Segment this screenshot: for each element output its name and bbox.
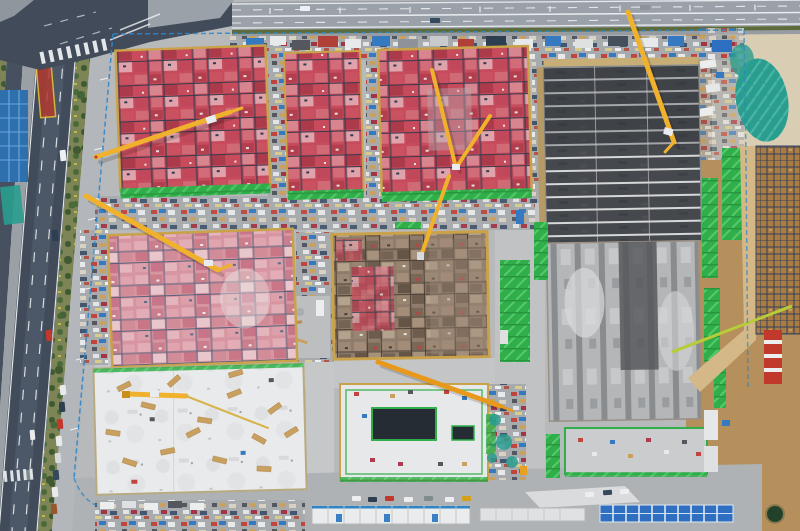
southeast-slab-surface	[565, 428, 707, 474]
net-edge	[565, 472, 707, 477]
crane-cab	[150, 390, 159, 397]
crane-counterweight	[122, 391, 130, 398]
blue-roof-dormitory	[600, 505, 733, 522]
truck	[516, 210, 524, 224]
trailer-offices-row	[312, 506, 470, 524]
aerial-construction-site-photo	[0, 0, 800, 531]
red-formwork-block-c	[378, 46, 532, 202]
membrane-dark-half	[544, 65, 700, 148]
settling-pond	[766, 505, 784, 523]
excavation-pit-main	[372, 408, 436, 440]
rebar-grid-area	[756, 146, 800, 334]
buildings	[93, 45, 707, 494]
net-strip	[534, 222, 548, 280]
pink-formwork-block	[108, 229, 297, 367]
truck	[316, 300, 324, 316]
brown-block-red-bay	[336, 239, 362, 261]
southeast-slab	[565, 428, 707, 474]
net-strip	[704, 288, 720, 362]
brown-formwork-block	[332, 232, 489, 360]
brown-block-light-half	[429, 239, 486, 355]
truck	[500, 330, 508, 344]
excavation-pit-small	[452, 426, 474, 440]
yellow-loader	[520, 466, 527, 475]
net-strip	[722, 148, 742, 240]
net-piece	[395, 222, 421, 229]
block-b-deck	[284, 51, 364, 193]
striped-concrete-slab	[546, 241, 701, 422]
teal-cover-small	[730, 44, 754, 76]
net-strip	[702, 178, 718, 278]
red-formwork-block-b	[284, 51, 364, 200]
dark-membrane-slab	[536, 57, 701, 244]
mid-laydown-strip	[95, 196, 535, 230]
net-strip	[546, 434, 560, 478]
block-a-deck	[115, 45, 270, 190]
slab-dark-bay	[618, 241, 658, 370]
podium-slab-with-pit	[340, 384, 488, 480]
white-foundation-slab	[93, 363, 306, 494]
net-strip	[500, 260, 530, 362]
crane-hook-block	[417, 252, 424, 260]
crane-cab	[452, 164, 460, 170]
teal-structure-west	[0, 185, 24, 225]
crane-cab	[204, 260, 213, 266]
red-tower-crane-mast	[764, 330, 782, 384]
brown-block-red-bay	[352, 266, 395, 331]
net-edge	[340, 477, 488, 482]
